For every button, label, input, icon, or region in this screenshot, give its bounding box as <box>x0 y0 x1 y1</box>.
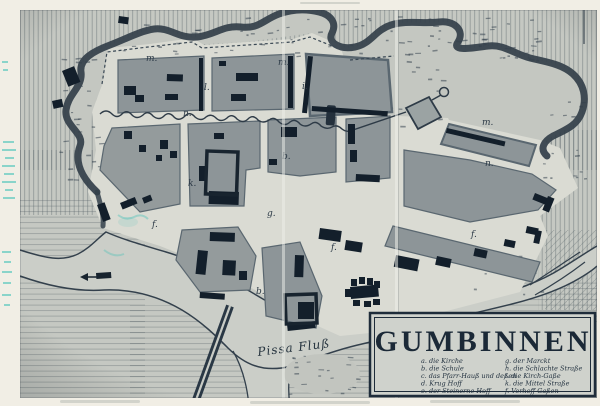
gumbinnen-map-photo: m. m. m. n. n. l. i. k. g. f. f. f. b. b… <box>0 0 600 406</box>
legend-entry: f. Vorhoff Gaßen <box>504 387 559 395</box>
legend-cartouche: GUMBINNEN a. die Kirche b. die Schule c.… <box>370 313 595 396</box>
cartouche-title: GUMBINNEN <box>374 325 591 358</box>
photograph-of-town-plan: m. m. m. n. n. l. i. k. g. f. f. f. b. b… <box>0 0 600 406</box>
photo-area: m. m. m. n. n. l. i. k. g. f. f. f. b. b… <box>20 10 597 406</box>
legend-entry: e. der Steinerne Hoff <box>421 387 492 395</box>
